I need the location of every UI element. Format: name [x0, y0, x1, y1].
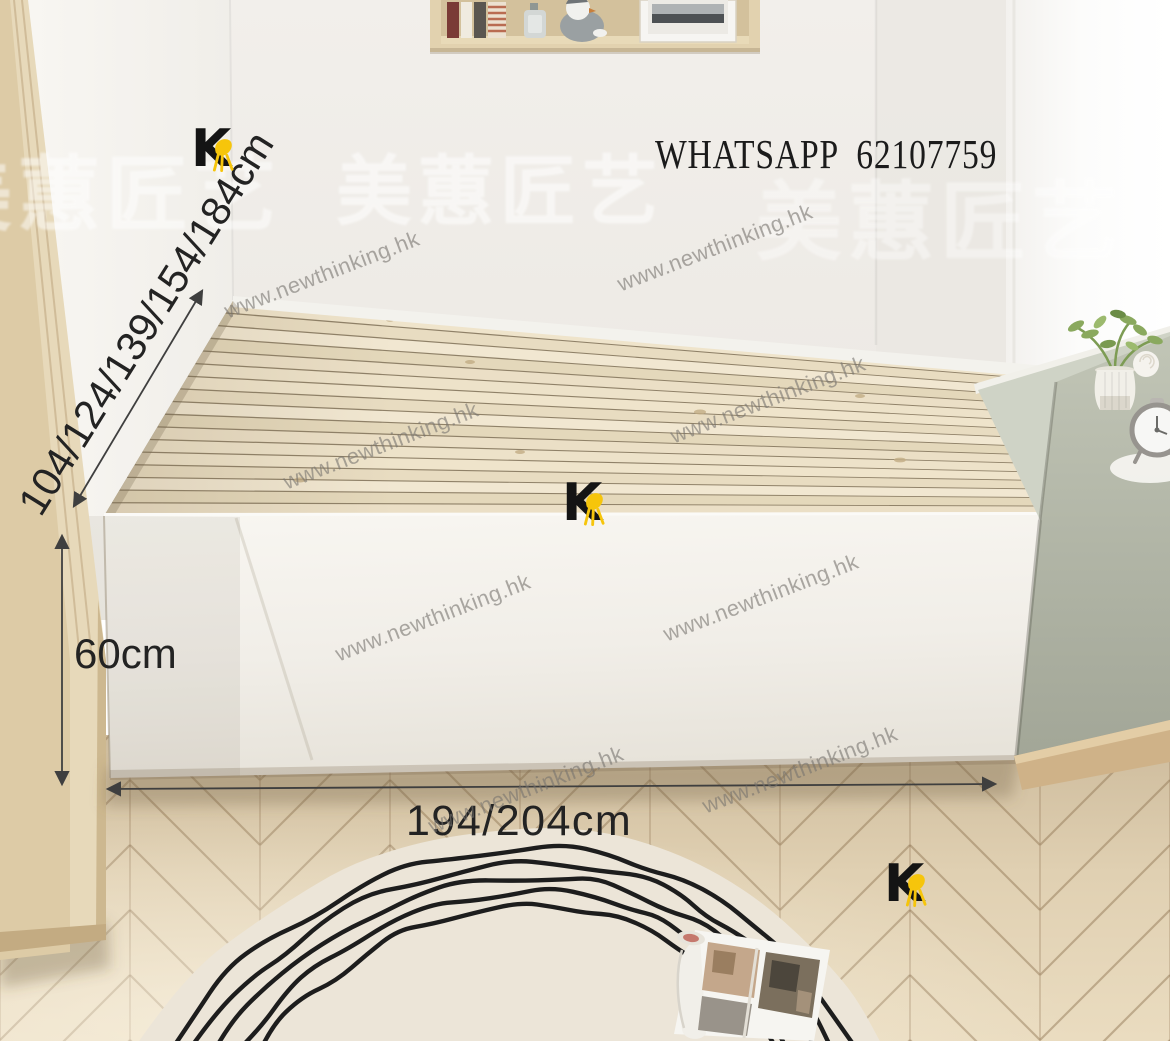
product-photo-bedroom: 美蕙匠艺美蕙匠艺美蕙匠艺 WHATSAPP 62107759 104/124/1… [0, 0, 1170, 1041]
wall-shelf [430, 0, 760, 54]
shelf-books [447, 2, 506, 38]
room-scene [0, 0, 1170, 1041]
white-rose [1133, 351, 1159, 377]
shelf-picture-frame [640, 0, 736, 42]
bed [104, 296, 1080, 780]
window-wall [1006, 0, 1170, 386]
